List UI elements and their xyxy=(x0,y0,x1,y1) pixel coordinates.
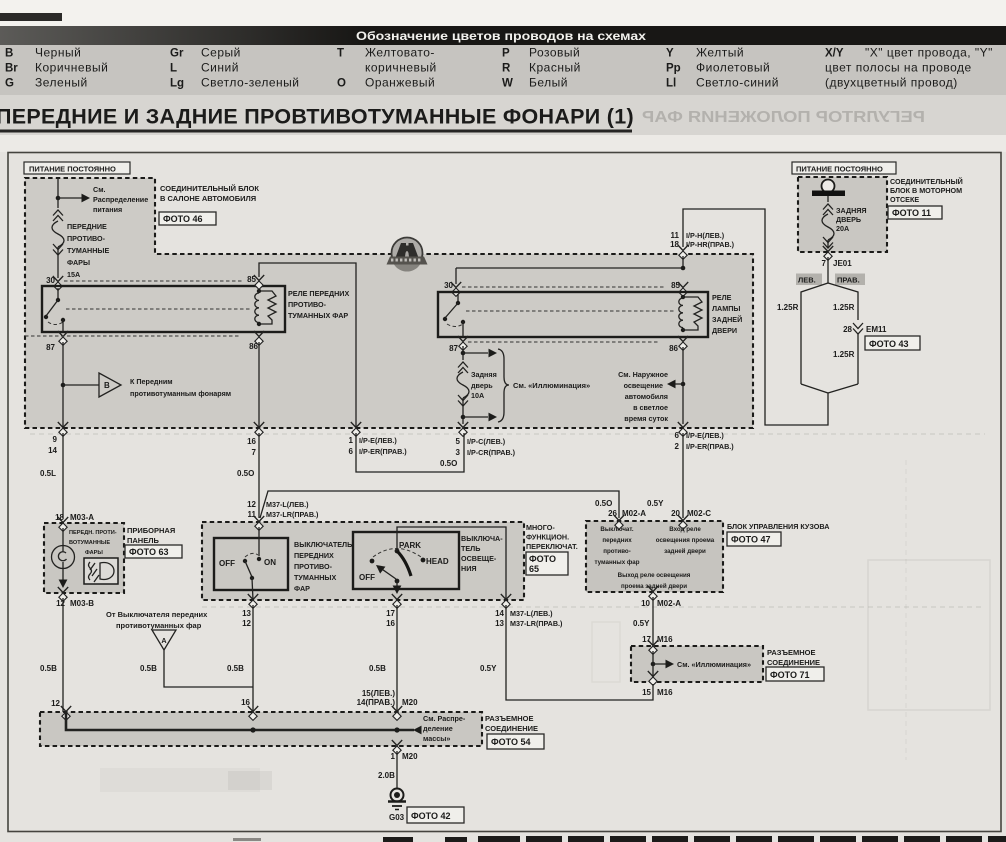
svg-text:Светло-зеленый: Светло-зеленый xyxy=(201,76,300,90)
svg-text:6: 6 xyxy=(675,431,680,440)
svg-text:12: 12 xyxy=(242,619,251,628)
svg-text:ДВЕРИ: ДВЕРИ xyxy=(712,326,737,335)
svg-text:ВЫКЛЮЧАТЕЛЬ: ВЫКЛЮЧАТЕЛЬ xyxy=(294,540,352,549)
svg-text:Серый: Серый xyxy=(201,46,241,60)
svg-text:ФАР: ФАР xyxy=(294,584,310,593)
svg-text:проема задней двери: проема задней двери xyxy=(621,583,687,590)
svg-text:0.5Y: 0.5Y xyxy=(480,664,497,673)
svg-text:Розовый: Розовый xyxy=(529,46,580,60)
svg-text:Фиолетовый: Фиолетовый xyxy=(696,61,770,75)
svg-text:РЕГУЛЯТОР ПОЛОЖЕНИЯ ФАР: РЕГУЛЯТОР ПОЛОЖЕНИЯ ФАР xyxy=(642,109,925,126)
svg-text:18: 18 xyxy=(670,240,679,249)
svg-text:Синий: Синий xyxy=(201,61,239,75)
svg-text:85: 85 xyxy=(671,281,680,290)
svg-text:ПЕРЕДНИЕ И ЗАДНИЕ ПРОВТИВОТУМА: ПЕРЕДНИЕ И ЗАДНИЕ ПРОВТИВОТУМАННЫЕ ФОНАР… xyxy=(0,106,634,129)
svg-text:ПРАВ.: ПРАВ. xyxy=(837,276,860,285)
svg-text:ФОТО 46: ФОТО 46 xyxy=(163,214,202,224)
svg-text:См. Распре-: См. Распре- xyxy=(423,714,466,723)
svg-text:G03: G03 xyxy=(389,813,405,822)
svg-text:деление: деление xyxy=(423,724,453,733)
svg-text:РЕЛЕ: РЕЛЕ xyxy=(712,293,732,302)
svg-text:освещения проема: освещения проема xyxy=(656,537,715,544)
svg-text:86: 86 xyxy=(669,344,678,353)
svg-text:СОЕДИНЕНИЕ: СОЕДИНЕНИЕ xyxy=(485,724,538,733)
svg-text:СОЕДИНЕНИЕ: СОЕДИНЕНИЕ xyxy=(767,658,820,667)
svg-text:I/P-HR(ПРАВ.): I/P-HR(ПРАВ.) xyxy=(686,240,735,249)
svg-text:Вход реле: Вход реле xyxy=(669,526,701,533)
svg-text:ТЕЛЬ: ТЕЛЬ xyxy=(461,544,480,553)
svg-text:14(ПРАВ.): 14(ПРАВ.) xyxy=(357,698,396,707)
svg-text:I/P-E(ЛЕВ.): I/P-E(ЛЕВ.) xyxy=(359,436,397,445)
svg-text:Обозначение цветов проводов на: Обозначение цветов проводов на схемах xyxy=(356,29,646,43)
svg-text:ВОТУМАННЫЕ: ВОТУМАННЫЕ xyxy=(69,540,110,546)
svg-text:0.5B: 0.5B xyxy=(140,664,157,673)
svg-text:13: 13 xyxy=(242,609,251,618)
svg-text:28: 28 xyxy=(843,325,852,334)
svg-text:Светло-синий: Светло-синий xyxy=(696,76,779,90)
svg-text:Y: Y xyxy=(666,48,674,60)
svg-text:11: 11 xyxy=(671,231,680,240)
svg-text:M02-A: M02-A xyxy=(657,599,681,608)
svg-text:ФОТО 71: ФОТО 71 xyxy=(770,670,809,680)
svg-text:I/P-ER(ПРАВ.): I/P-ER(ПРАВ.) xyxy=(359,447,407,456)
svg-text:1.25R: 1.25R xyxy=(833,303,855,312)
svg-text:2: 2 xyxy=(675,442,680,451)
svg-text:туманных фар: туманных фар xyxy=(594,559,639,566)
svg-text:16: 16 xyxy=(247,437,256,446)
svg-text:12: 12 xyxy=(51,699,60,708)
svg-text:G: G xyxy=(5,78,14,90)
svg-text:Выключат.: Выключат. xyxy=(600,526,633,533)
svg-text:I/P-H(ЛЕВ.): I/P-H(ЛЕВ.) xyxy=(686,231,725,240)
svg-text:Желтый: Желтый xyxy=(696,46,744,60)
svg-text:ПАНЕЛЬ: ПАНЕЛЬ xyxy=(127,536,159,545)
svg-text:противотуманным фонарям: противотуманным фонарям xyxy=(130,389,231,398)
svg-text:ЛЕВ.: ЛЕВ. xyxy=(798,276,816,285)
svg-text:Задняя: Задняя xyxy=(471,370,497,379)
svg-text:B: B xyxy=(104,381,110,390)
svg-text:0.5O: 0.5O xyxy=(440,459,457,468)
svg-text:Оранжевый: Оранжевый xyxy=(365,76,435,90)
svg-text:M16: M16 xyxy=(657,688,673,697)
svg-text:M02-C: M02-C xyxy=(687,509,711,518)
svg-text:ПЕРЕКЛЮЧАТ.: ПЕРЕКЛЮЧАТ. xyxy=(526,542,578,551)
svg-text:17: 17 xyxy=(386,609,395,618)
svg-text:Красный: Красный xyxy=(529,61,581,75)
svg-text:РАЗЪЕМНОЕ: РАЗЪЕМНОЕ xyxy=(485,714,533,723)
svg-text:ТУМАННЫЕ: ТУМАННЫЕ xyxy=(67,246,109,255)
svg-text:БЛОК УПРАВЛЕНИЯ КУЗОВА: БЛОК УПРАВЛЕНИЯ КУЗОВА xyxy=(727,522,829,531)
svg-text:РАЗЪЕМНОЕ: РАЗЪЕМНОЕ xyxy=(767,648,815,657)
svg-text:15А: 15А xyxy=(67,270,80,279)
svg-text:M37-L(ЛЕВ.): M37-L(ЛЕВ.) xyxy=(266,500,309,509)
svg-text:0.5O: 0.5O xyxy=(595,499,612,508)
svg-text:87: 87 xyxy=(46,343,55,352)
svg-text:цвет полосы на проводе: цвет полосы на проводе xyxy=(825,61,972,75)
svg-text:12: 12 xyxy=(247,500,256,509)
svg-text:противотуманных фар: противотуманных фар xyxy=(116,621,202,630)
svg-text:А: А xyxy=(161,636,166,645)
svg-text:"X" цвет провода, "Y": "X" цвет провода, "Y" xyxy=(865,46,993,60)
svg-text:От Выключателя передних: От Выключателя передних xyxy=(106,610,208,619)
svg-text:1.25R: 1.25R xyxy=(833,350,855,359)
svg-text:1: 1 xyxy=(391,752,396,761)
svg-text:ФОТО 43: ФОТО 43 xyxy=(869,339,908,349)
svg-text:M03-A: M03-A xyxy=(70,513,94,522)
svg-text:X/Y: X/Y xyxy=(825,48,844,60)
svg-text:ПИТАНИЕ ПОСТОЯННО: ПИТАНИЕ ПОСТОЯННО xyxy=(796,165,883,174)
svg-text:13: 13 xyxy=(495,619,504,628)
svg-text:массы»: массы» xyxy=(423,734,450,743)
svg-text:0.5Y: 0.5Y xyxy=(633,619,650,628)
svg-text:16: 16 xyxy=(241,698,250,707)
svg-text:0.5B: 0.5B xyxy=(40,664,57,673)
svg-text:15(ЛЕВ.): 15(ЛЕВ.) xyxy=(362,689,396,698)
svg-text:противо-: противо- xyxy=(603,548,631,555)
svg-text:Lg: Lg xyxy=(170,78,184,90)
svg-text:7: 7 xyxy=(822,259,827,268)
svg-text:M37-L(ЛЕВ.): M37-L(ЛЕВ.) xyxy=(510,609,553,618)
svg-text:освещение: освещение xyxy=(624,381,663,390)
svg-text:M37-LR(ПРАВ.): M37-LR(ПРАВ.) xyxy=(266,510,319,519)
svg-text:16: 16 xyxy=(386,619,395,628)
svg-text:См. «Иллюминация»: См. «Иллюминация» xyxy=(513,381,590,390)
svg-text:15: 15 xyxy=(642,688,651,697)
svg-text:R: R xyxy=(502,63,511,75)
svg-text:К Передним: К Передним xyxy=(130,377,173,386)
svg-text:ЗАДНЯЯ: ЗАДНЯЯ xyxy=(836,206,867,215)
svg-text:JE01: JE01 xyxy=(833,259,852,268)
svg-text:ПИТАНИЕ ПОСТОЯННО: ПИТАНИЕ ПОСТОЯННО xyxy=(29,165,116,174)
svg-text:См. «Иллюминация»: См. «Иллюминация» xyxy=(677,660,751,669)
svg-text:M02-A: M02-A xyxy=(622,509,646,518)
svg-text:3: 3 xyxy=(456,448,461,457)
svg-text:ФОТО 54: ФОТО 54 xyxy=(491,737,530,747)
svg-text:НИЯ: НИЯ xyxy=(461,564,477,573)
svg-text:ТУМАННЫХ: ТУМАННЫХ xyxy=(294,573,336,582)
svg-text:ПРИБОРНАЯ: ПРИБОРНАЯ xyxy=(127,526,175,535)
svg-text:14: 14 xyxy=(495,609,504,618)
svg-text:БЛОК В МОТОРНОМ: БЛОК В МОТОРНОМ xyxy=(890,186,962,195)
svg-text:ПЕРЕДН. ПРОТИ-: ПЕРЕДН. ПРОТИ- xyxy=(69,530,117,536)
svg-text:7: 7 xyxy=(252,448,257,457)
svg-text:Br: Br xyxy=(5,63,18,75)
svg-text:ФОТО 63: ФОТО 63 xyxy=(129,547,168,557)
svg-text:OFF: OFF xyxy=(219,559,235,568)
svg-text:Коричневый: Коричневый xyxy=(35,61,108,75)
svg-text:M20: M20 xyxy=(402,698,418,707)
svg-text:I/P-ER(ПРАВ.): I/P-ER(ПРАВ.) xyxy=(686,442,734,451)
svg-text:Выход реле освещения: Выход реле освещения xyxy=(618,572,691,579)
svg-text:OFF: OFF xyxy=(359,573,375,582)
svg-text:ПРОТИВО-: ПРОТИВО- xyxy=(288,300,327,309)
svg-text:питания: питания xyxy=(93,205,122,214)
svg-text:I/P-CR(ПРАВ.): I/P-CR(ПРАВ.) xyxy=(467,448,516,457)
svg-text:ОСВЕЩЕ-: ОСВЕЩЕ- xyxy=(461,554,497,563)
svg-text:0.5B: 0.5B xyxy=(369,664,386,673)
svg-text:Gr: Gr xyxy=(170,48,184,60)
svg-text:ФУНКЦИОН.: ФУНКЦИОН. xyxy=(526,533,569,542)
svg-text:10А: 10А xyxy=(471,391,484,400)
svg-text:0.5B: 0.5B xyxy=(227,664,244,673)
svg-text:HEAD: HEAD xyxy=(426,557,449,566)
svg-text:0.5Y: 0.5Y xyxy=(647,499,664,508)
svg-text:ОТСЕКЕ: ОТСЕКЕ xyxy=(890,195,919,204)
svg-text:14: 14 xyxy=(48,446,57,455)
svg-text:(двухцветный провод): (двухцветный провод) xyxy=(825,76,958,90)
svg-text:задней двери: задней двери xyxy=(664,548,706,555)
svg-text:1.25R: 1.25R xyxy=(777,303,799,312)
svg-text:Ll: Ll xyxy=(666,78,676,90)
svg-text:передних: передних xyxy=(602,537,632,544)
svg-text:B: B xyxy=(5,48,13,60)
svg-text:ФОТО 47: ФОТО 47 xyxy=(731,535,770,545)
svg-text:M37-LR(ПРАВ.): M37-LR(ПРАВ.) xyxy=(510,619,563,628)
svg-text:10: 10 xyxy=(641,599,650,608)
svg-text:I/P-C(ЛЕВ.): I/P-C(ЛЕВ.) xyxy=(467,437,506,446)
svg-text:T: T xyxy=(337,48,344,60)
svg-text:O: O xyxy=(337,78,346,90)
svg-text:18: 18 xyxy=(55,513,64,522)
svg-text:0.5L: 0.5L xyxy=(40,469,56,478)
svg-text:20А: 20А xyxy=(836,224,849,233)
svg-text:EM11: EM11 xyxy=(866,325,887,334)
svg-text:M03-B: M03-B xyxy=(70,599,94,608)
svg-text:Распределение: Распределение xyxy=(93,195,148,204)
svg-text:87: 87 xyxy=(449,344,458,353)
svg-text:M16: M16 xyxy=(657,635,673,644)
svg-text:Желтовато-: Желтовато- xyxy=(365,46,435,60)
svg-text:W: W xyxy=(502,78,513,90)
svg-text:МНОГО-: МНОГО- xyxy=(526,523,555,532)
svg-text:30: 30 xyxy=(444,281,453,290)
svg-text:Черный: Черный xyxy=(35,46,81,60)
svg-text:СОЕДИНИТЕЛЬНЫЙ: СОЕДИНИТЕЛЬНЫЙ xyxy=(890,177,963,186)
svg-text:1: 1 xyxy=(349,436,354,445)
svg-text:См.: См. xyxy=(93,185,106,194)
svg-text:в светлое: в светлое xyxy=(633,403,668,412)
svg-text:время суток: время суток xyxy=(624,414,668,423)
svg-text:ПЕРЕДНИХ: ПЕРЕДНИХ xyxy=(294,551,334,560)
svg-text:M20: M20 xyxy=(402,752,418,761)
svg-text:ВЫКЛЮЧА-: ВЫКЛЮЧА- xyxy=(461,534,503,543)
svg-text:ФОТО: ФОТО xyxy=(529,554,556,564)
svg-text:ON: ON xyxy=(264,558,276,567)
svg-text:ТУМАННЫХ ФАР: ТУМАННЫХ ФАР xyxy=(288,311,348,320)
svg-text:9: 9 xyxy=(53,435,58,444)
svg-text:коричневый: коричневый xyxy=(365,61,437,75)
svg-text:65: 65 xyxy=(529,564,539,574)
svg-text:0.5O: 0.5O xyxy=(237,469,254,478)
svg-text:ЛАМПЫ: ЛАМПЫ xyxy=(712,304,740,313)
svg-text:ПРОТИВО-: ПРОТИВО- xyxy=(67,234,106,243)
svg-text:ФАРЫ: ФАРЫ xyxy=(67,258,90,267)
svg-text:В САЛОНЕ АВТОМОБИЛЯ: В САЛОНЕ АВТОМОБИЛЯ xyxy=(160,194,256,203)
svg-text:ФОТО 11: ФОТО 11 xyxy=(892,208,931,218)
svg-text:дверь: дверь xyxy=(471,381,493,390)
svg-text:Pp: Pp xyxy=(666,63,681,75)
svg-text:СОЕДИНИТЕЛЬНЫЙ БЛОК: СОЕДИНИТЕЛЬНЫЙ БЛОК xyxy=(160,184,259,193)
svg-text:6: 6 xyxy=(349,447,354,456)
svg-text:Зеленый: Зеленый xyxy=(35,76,88,90)
svg-text:L: L xyxy=(170,63,177,75)
svg-text:ФОТО 42: ФОТО 42 xyxy=(411,811,450,821)
svg-text:5: 5 xyxy=(456,437,461,446)
svg-text:ПЕРЕДНИЕ: ПЕРЕДНИЕ xyxy=(67,222,107,231)
svg-text:РЕЛЕ ПЕРЕДНИХ: РЕЛЕ ПЕРЕДНИХ xyxy=(288,289,349,298)
svg-text:ДВЕРЬ: ДВЕРЬ xyxy=(836,215,861,224)
svg-text:I/P-E(ЛЕВ.): I/P-E(ЛЕВ.) xyxy=(686,431,724,440)
svg-text:ЗАДНЕЙ: ЗАДНЕЙ xyxy=(712,315,742,324)
svg-text:автомобиля: автомобиля xyxy=(625,392,668,401)
svg-text:См. Наружное: См. Наружное xyxy=(618,370,668,379)
svg-text:ПРОТИВО-: ПРОТИВО- xyxy=(294,562,333,571)
svg-text:12: 12 xyxy=(56,599,65,608)
svg-text:Белый: Белый xyxy=(529,76,568,90)
svg-text:P: P xyxy=(502,48,510,60)
svg-text:2.0B: 2.0B xyxy=(378,771,395,780)
svg-text:ФАРЫ: ФАРЫ xyxy=(85,550,103,556)
